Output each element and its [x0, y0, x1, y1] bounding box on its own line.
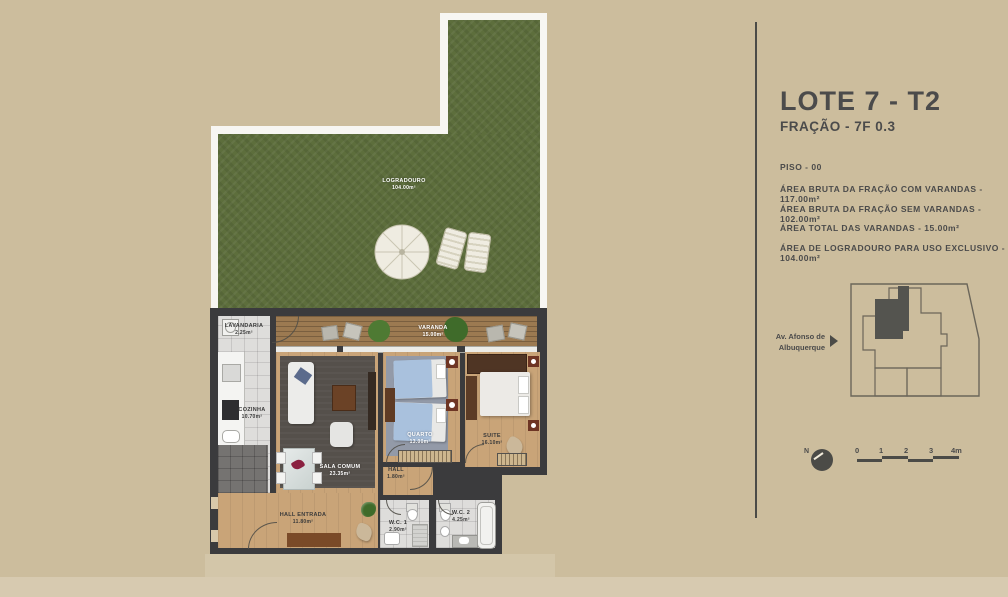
suite-wardrobe-icon: [467, 354, 527, 374]
lamp-icon: [531, 359, 536, 364]
room-area: 104.00m²: [382, 185, 425, 192]
street-label: Av. Afonso de Albuquerque: [770, 332, 825, 353]
info-area-sem-varandas: ÁREA BRUTA DA FRAÇÃO SEM VARANDAS - 102.…: [780, 204, 1008, 224]
tv-console-icon: [368, 372, 376, 430]
room-area: 23.35m²: [320, 471, 361, 478]
coffee-table-icon: [332, 385, 356, 411]
scale-tick-2: 2: [904, 446, 908, 455]
scale-tick-0: 0: [855, 446, 859, 455]
room-label-quarto: QUARTO 13.00m²: [407, 432, 433, 446]
street-line2: Albuquerque: [770, 343, 825, 354]
chair-icon: [276, 472, 286, 484]
plant-icon: [368, 320, 390, 342]
room-area: 16.10m²: [482, 440, 503, 447]
scale-bar-segment: [882, 456, 908, 459]
chair-icon: [276, 452, 286, 464]
room-area: 11.80m²: [280, 519, 327, 526]
room-area: 1.80m²: [387, 474, 405, 481]
room-name: COZINHA: [238, 407, 265, 414]
deck-pouf-icon: [486, 325, 505, 343]
lamp-icon: [449, 359, 455, 365]
room-label-wc2: W.C. 2 4.25m²: [452, 510, 470, 524]
room-name: W.C. 2: [452, 510, 470, 517]
room-label-suite: SUITE 16.10m²: [482, 433, 503, 447]
scale-tick-3: 3: [929, 446, 933, 455]
info-piso: PISO - 00: [780, 162, 822, 172]
sink-icon: [459, 537, 469, 544]
scale-bar-segment: [908, 459, 933, 462]
scale-tick-1: 1: [879, 446, 883, 455]
room-label-varanda: VARANDA 15.00m²: [418, 325, 447, 339]
site-plan-icon: [846, 276, 986, 400]
scale-bar-segment: [933, 456, 959, 459]
lamp-icon: [531, 423, 536, 428]
room-label-logradouro: LOGRADOURO 104.00m²: [382, 178, 425, 192]
page-subtitle: FRAÇÃO - 7F 0.3: [780, 119, 896, 134]
bidet-icon: [440, 526, 450, 537]
room-area: 2.90m²: [389, 527, 407, 534]
room-label-sala-comum: SALA COMUM 23.35m²: [320, 464, 361, 478]
info-area-varandas: ÁREA TOTAL DAS VARANDAS - 15.00m²: [780, 223, 959, 233]
sink-icon: [384, 532, 400, 545]
room-area: 10.70m²: [238, 414, 265, 421]
info-area-logradouro: ÁREA DE LOGRADOURO PARA USO EXCLUSIVO - …: [780, 243, 1008, 263]
room-name: W.C. 1: [389, 520, 407, 527]
doormat-icon: [287, 533, 341, 547]
room-area: 15.00m²: [418, 332, 447, 339]
room-label-wc1: W.C. 1 2.90m²: [389, 520, 407, 534]
suite-dresser-icon: [466, 376, 477, 420]
parasol-icon: [372, 222, 432, 282]
street-line1: Av. Afonso de: [770, 332, 825, 343]
fridge-icon: [222, 364, 241, 382]
scale-tick-4: 4m: [951, 446, 962, 455]
room-label-lavandaria: LAVANDARIA 2.25m²: [225, 323, 264, 337]
deck-pouf-icon: [508, 322, 528, 340]
kitchen-lower-cabinets: [218, 445, 268, 493]
room-name: HALL ENTRADA: [280, 512, 327, 519]
room-label-hall-entrada: HALL ENTRADA 11.80m²: [280, 512, 327, 526]
wardrobe-icon: [398, 450, 452, 463]
room-label-hall: HALL 1.80m²: [387, 467, 405, 481]
deck-pouf-icon: [321, 325, 339, 341]
armchair-icon: [330, 422, 353, 447]
pillow-icon: [518, 376, 529, 394]
room-name: HALL: [387, 467, 405, 474]
north-label: N: [804, 448, 809, 455]
street-arrow-icon: [830, 335, 838, 347]
desk-icon: [385, 388, 395, 422]
wall-window: [211, 530, 218, 542]
shower-icon: [412, 524, 428, 547]
page-title: LOTE 7 - T2: [780, 86, 941, 117]
scale-bar-segment: [857, 459, 882, 462]
room-name: SUITE: [482, 433, 503, 440]
room-area: 2.25m²: [225, 330, 264, 337]
room-label-cozinha: COZINHA 10.70m²: [238, 407, 265, 421]
sidewalk-strip: [205, 554, 555, 577]
wardrobe-icon: [497, 453, 527, 466]
bed-duvet: [393, 359, 432, 398]
wall-window: [211, 497, 218, 509]
chair-icon: [312, 452, 322, 464]
pillow-icon: [436, 364, 446, 379]
pillow-icon: [518, 396, 529, 414]
bathtub-inner: [480, 506, 493, 545]
lamp-icon: [449, 402, 455, 408]
cooktop-icon: [222, 400, 239, 420]
room-area: 4.25m²: [452, 517, 470, 524]
sink-icon: [222, 430, 240, 443]
info-area-com-varandas: ÁREA BRUTA DA FRAÇÃO COM VARANDAS - 117.…: [780, 184, 1008, 204]
pillow-icon: [436, 408, 446, 423]
bottom-band: [0, 577, 1008, 597]
room-name: LAVANDARIA: [225, 323, 264, 330]
room-area: 13.00m²: [407, 439, 433, 446]
floor-plan-page: LOGRADOURO 104.00m²: [0, 0, 1008, 597]
panel-divider: [755, 22, 757, 518]
